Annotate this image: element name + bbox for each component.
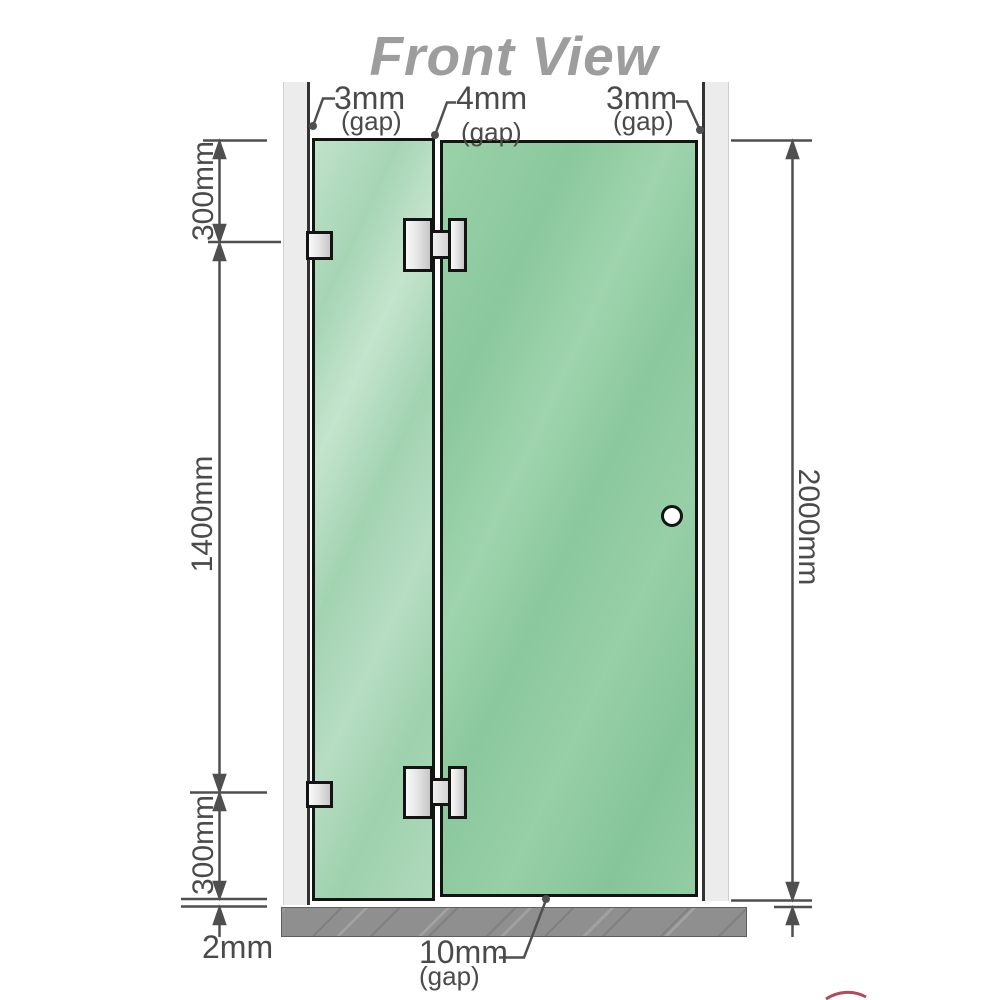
gap-label-top-middle-value: 4mm	[456, 82, 527, 114]
floor-base	[281, 907, 747, 937]
glass-hinge-top	[403, 218, 467, 272]
dimension-right-full: 2000mm	[793, 457, 823, 597]
hinge-plate-left	[403, 766, 433, 819]
front-view-diagram: Front View	[0, 0, 1000, 1000]
page-title: Front View	[14, 24, 1000, 88]
gap-label-top-right-unit: (gap)	[613, 108, 674, 134]
door-glass-panel	[440, 140, 698, 897]
gap-label-top-left-unit: (gap)	[341, 108, 402, 134]
glass-hinge-bottom	[403, 766, 467, 819]
dimension-left-middle: 1400mm	[188, 444, 218, 584]
gap-label-top-middle-unit: (gap)	[461, 119, 522, 145]
right-wall-channel	[702, 82, 729, 901]
wall-bracket-top	[306, 231, 333, 260]
door-knob	[661, 505, 683, 527]
hinge-bridge	[430, 778, 451, 806]
gap-label-bottom-unit: (gap)	[419, 963, 480, 989]
dimension-left-top: 300mm	[189, 121, 219, 261]
hinge-plate-left	[403, 218, 433, 272]
hinge-bridge	[430, 230, 451, 259]
gap-label-floor-value: 2mm	[202, 931, 273, 963]
dimension-left-bottom: 300mm	[189, 775, 219, 915]
watermark-red-fragment	[826, 992, 866, 999]
wall-bracket-bottom	[306, 781, 333, 808]
